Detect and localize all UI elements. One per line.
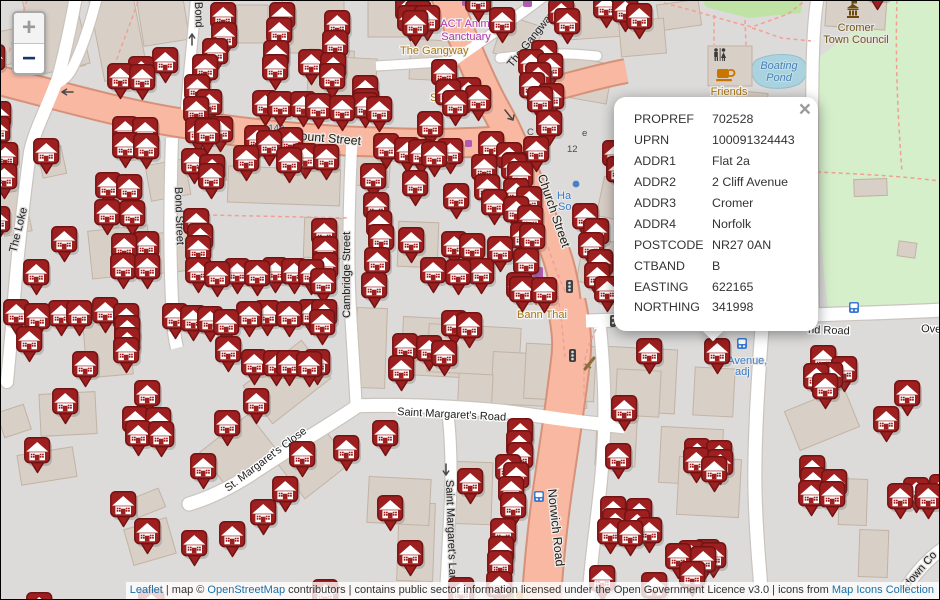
- svg-text:Town Council: Town Council: [823, 34, 888, 46]
- svg-text:adj: adj: [735, 366, 750, 378]
- svg-text:Cambridge Street: Cambridge Street: [341, 232, 353, 318]
- svg-text:Bann Thai: Bann Thai: [517, 309, 567, 321]
- svg-text:e: e: [582, 128, 587, 139]
- svg-text:Overstrand Road: Overstrand Road: [921, 323, 940, 338]
- svg-text:PACT Animal: PACT Animal: [434, 18, 498, 30]
- svg-text:Pond: Pond: [766, 72, 793, 84]
- svg-text:Sanctuary: Sanctuary: [441, 31, 491, 43]
- svg-text:Boating: Boating: [760, 60, 798, 72]
- svg-text:Cromer: Cromer: [838, 22, 875, 34]
- svg-text:The Gangway: The Gangway: [400, 45, 469, 57]
- svg-text:So: So: [558, 201, 571, 213]
- svg-text:12: 12: [567, 144, 578, 155]
- svg-text:Bond: Bond: [192, 2, 205, 28]
